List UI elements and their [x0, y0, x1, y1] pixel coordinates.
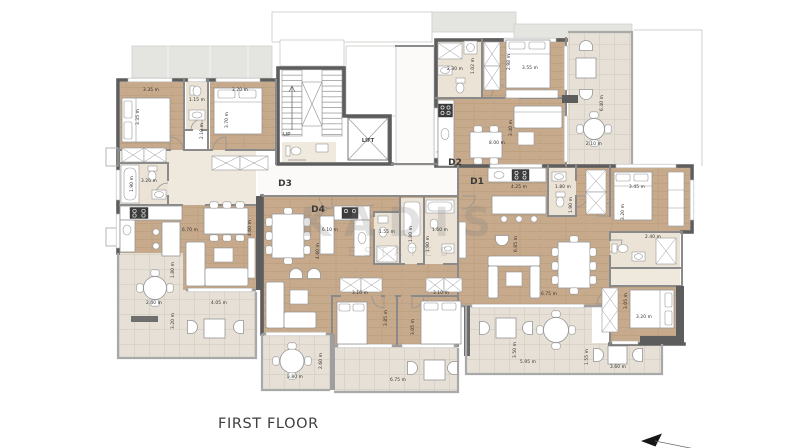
unit-label: D1 — [470, 177, 484, 187]
dimension-label: 1.90 m — [129, 176, 135, 192]
dimension-label: 6.85 m — [513, 236, 519, 252]
north-arrow-icon — [641, 434, 700, 448]
unit-label: D3 — [278, 179, 292, 189]
dimension-label: 2.60 m — [318, 353, 324, 369]
dimension-label: 3.20 m — [170, 313, 176, 329]
dining-table — [552, 236, 596, 294]
dining-table — [204, 202, 248, 241]
dimension-label: 3.85 m — [383, 310, 389, 326]
floor-plan-page: KADIS ESTATES UP LIFT D3D4D2D1 3.35 m3.3… — [0, 0, 796, 448]
kitchen — [438, 100, 454, 166]
wardrobe — [586, 170, 606, 214]
dimension-label: 3.20 m — [620, 204, 626, 220]
dimension-label: 2.30 m — [447, 66, 463, 72]
dimension-label: 3.05 m — [623, 293, 629, 309]
dimension-label: 3.20 m — [232, 87, 248, 93]
dimension-label: 6.75 m — [390, 377, 406, 383]
stairs-up-label: UP — [283, 132, 291, 138]
wardrobe — [484, 42, 500, 90]
dimension-label: 1.55 m — [584, 349, 590, 365]
dimension-label: 3.20 m — [636, 314, 652, 320]
dimension-label: 3.40 m — [508, 120, 514, 136]
dimension-label: 2.10 m — [586, 141, 602, 147]
dimension-label: 2.10 m — [199, 123, 205, 139]
dimension-label: 6.70 m — [182, 227, 198, 233]
dimension-label: 1.02 m — [470, 58, 476, 74]
dimension-label: 4.60 m — [247, 220, 253, 236]
bed — [602, 288, 674, 332]
dimension-label: 8.00 m — [489, 140, 505, 146]
dimension-label: 3.80 m — [287, 374, 303, 380]
dimension-label: 3.35 m — [135, 109, 141, 125]
dimension-label: 3.45 m — [629, 184, 645, 190]
floor-plan-drawing: KADIS ESTATES UP LIFT D3D4D2D1 3.35 m3.3… — [0, 0, 796, 448]
dimension-label: 1.60 m — [432, 227, 448, 233]
dimension-label: 1.80 m — [408, 226, 414, 242]
watermark-line2: ESTATES — [348, 245, 455, 259]
dimension-label: 3.70 m — [224, 112, 230, 128]
dimension-label: 3.60 m — [610, 364, 626, 370]
dimension-label: 3.10 m — [433, 290, 449, 296]
unit-label: D2 — [448, 158, 462, 168]
dimension-label: 1.55 m — [379, 229, 395, 235]
dimension-label: 3.20 m — [141, 178, 157, 184]
dimension-label: 2.40 m — [645, 234, 661, 240]
dimension-label: 2.40 m — [146, 300, 162, 306]
dimension-label: 6.75 m — [541, 291, 557, 297]
watermark-line1: KADIS — [300, 200, 504, 246]
dimension-label: 1.90 m — [568, 197, 574, 213]
dimension-label: 6.40 m — [599, 95, 605, 111]
dimension-label: 2.98 m — [506, 54, 512, 70]
dimension-label: 1.90 m — [425, 236, 431, 252]
dimension-label: 6.10 m — [322, 227, 338, 233]
dimension-label: 3.50 m — [512, 342, 518, 358]
dimension-label: 1.15 m — [189, 97, 205, 103]
dimension-label: 3.10 m — [352, 290, 368, 296]
bed — [122, 98, 170, 142]
dimension-label: 4.60 m — [315, 243, 321, 259]
dimension-label: 5.95 m — [520, 359, 536, 365]
dimension-label: 1.80 m — [170, 262, 176, 278]
dimension-label: 4.05 m — [211, 300, 227, 306]
dimension-label: 3.35 m — [143, 87, 159, 93]
corridor — [396, 46, 434, 166]
bed — [214, 88, 262, 134]
dimension-label: 4.25 m — [511, 184, 527, 190]
lift-label: LIFT — [362, 138, 375, 144]
dimension-label: 1.80 m — [555, 184, 571, 190]
dimension-label: 3.55 m — [522, 65, 538, 71]
unit-label: D4 — [311, 205, 325, 215]
dimension-label: 3.05 m — [410, 319, 416, 335]
page-title: FIRST FLOOR — [218, 416, 319, 432]
